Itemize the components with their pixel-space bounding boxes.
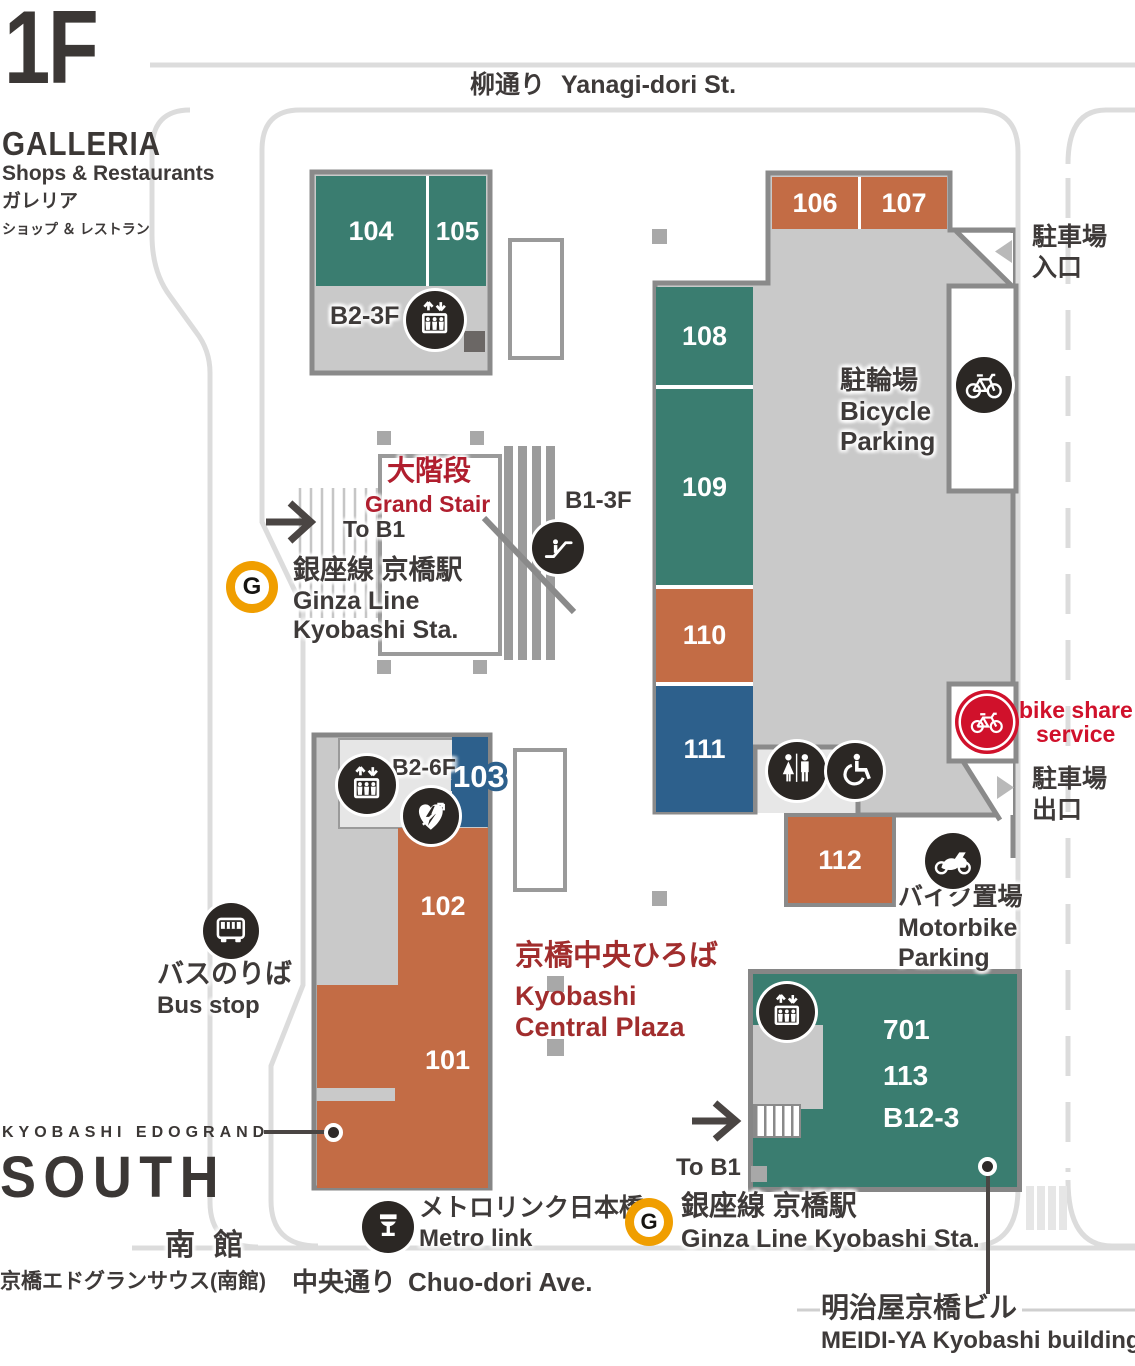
- room-701-label: 701: [883, 1014, 930, 1046]
- structure-box-south: [515, 750, 565, 890]
- motorbike-ja: バイク置場: [898, 884, 1023, 911]
- elevator-icon-south: [338, 756, 396, 814]
- south-leader-line: [264, 1130, 326, 1134]
- ginza-bottom-ja: 銀座線 京橋駅: [681, 1191, 980, 1221]
- room-106: 106: [772, 177, 858, 229]
- floor-label: 1F: [4, 0, 96, 104]
- yanagi-ja: 柳通り: [470, 72, 545, 99]
- galleria-title: GALLERIA: [2, 126, 161, 162]
- ginza-line-en: Ginza Line: [293, 588, 463, 615]
- bus-icon: [203, 903, 259, 959]
- yanagi-dori-street-label: 柳通り Yanagi-dori St.: [470, 72, 736, 99]
- bikeshare-icon: [961, 696, 1013, 748]
- room-101-label: 101: [425, 1045, 470, 1076]
- room-b12-3-label: B12-3: [883, 1102, 959, 1134]
- galleria-subtitle-en: Shops & Restaurants: [2, 163, 214, 186]
- plaza-en1: Kyobashi: [515, 982, 718, 1011]
- room-109: 109: [656, 389, 753, 585]
- ginza-line-g-icon: G: [226, 561, 278, 613]
- ginza-station-bottom-label: 銀座線 京橋駅 Ginza Line Kyobashi Sta.: [681, 1191, 980, 1253]
- motorbike-en2: Parking: [898, 945, 1023, 972]
- chuo-dori-street-label: 中央通り Chuo-dori Ave.: [292, 1268, 592, 1296]
- room-112: 112: [784, 813, 896, 907]
- parking-entrance-ja1: 駐車場: [1032, 224, 1107, 251]
- to-b1-label-stair: To B1: [343, 517, 405, 542]
- ginza-sta-ja: 銀座線 京橋駅: [293, 556, 463, 585]
- bus-ja: バスのりば: [157, 960, 292, 989]
- grand-stair-ja: 大階段: [387, 456, 471, 486]
- metrolink-label: メトロリンク日本橋 Metro link: [419, 1195, 644, 1252]
- bicycle-ja: 駐輪場: [840, 366, 935, 394]
- elevator-icon: [406, 291, 464, 349]
- central-plaza-label: 京橋中央ひろば Kyobashi Central Plaza: [515, 941, 718, 1043]
- motorbike-icon: [925, 833, 981, 889]
- to-b1-stairs: [753, 1104, 801, 1138]
- escalator-icon: [532, 522, 584, 574]
- metrolink-ja: メトロリンク日本橋: [419, 1195, 644, 1222]
- restroom-icon: [768, 742, 826, 800]
- crosswalk: [1026, 1186, 1067, 1230]
- aed-icon: [403, 788, 459, 844]
- g-letter: G: [243, 573, 262, 601]
- meidiya-leader-line: [986, 1174, 990, 1294]
- room-101-gray-notch: [317, 1088, 395, 1101]
- parking-exit-ja2: 出口: [1032, 797, 1107, 824]
- chuo-ja: 中央通り: [292, 1268, 396, 1296]
- motorbike-parking-label: バイク置場 Motorbike Parking: [898, 884, 1023, 972]
- metrolink-en: Metro link: [419, 1226, 644, 1252]
- room-102: 102: [398, 828, 488, 985]
- structure-box-north: [510, 240, 562, 358]
- parking-entrance-label: 駐車場 入口: [1032, 224, 1107, 282]
- south-block-levels: B2-6F: [392, 755, 456, 780]
- parking-entrance-ja2: 入口: [1032, 255, 1107, 282]
- bus-stop-label: バスのりば Bus stop: [157, 960, 292, 1019]
- grand-stair-levels: B1-3F: [565, 488, 632, 514]
- room-104: 104: [316, 176, 426, 286]
- room-108: 108: [656, 287, 753, 385]
- room-103-badge-label: 103: [453, 761, 505, 792]
- galleria-subtitle-ja2: ショップ ＆ レストラン: [2, 222, 150, 237]
- bicycle-en1: Bicycle: [840, 397, 935, 425]
- grand-stair-en: Grand Stair: [365, 492, 490, 517]
- elevator-icon-meidiya: [759, 984, 815, 1040]
- room-101: 101: [317, 985, 488, 1188]
- parking-exit-label: 駐車場 出口: [1032, 766, 1107, 824]
- north-building-service-square: [464, 331, 485, 352]
- south-wing-full-ja: 京橋エドグランサウス(南館): [0, 1271, 266, 1294]
- ginza-station-label: 銀座線 京橋駅 Ginza Line Kyobashi Sta.: [293, 556, 463, 644]
- room-111: 111: [656, 686, 753, 812]
- g-letter: G: [640, 1209, 657, 1235]
- ginza-line-g-icon-bottom: G: [625, 1198, 673, 1246]
- wheelchair-icon: [827, 743, 883, 799]
- bicycle-en2: Parking: [840, 427, 935, 455]
- bicycle-icon: [956, 357, 1012, 413]
- floor-map-1f: 104 105 106 107 108 109 110 111 112 102 …: [0, 0, 1135, 1366]
- meidiya-en: MEIDI-YA Kyobashi building: [821, 1328, 1135, 1354]
- galleria-subtitle-ja: ガレリア: [2, 192, 78, 213]
- room-113-label: 113: [883, 1060, 928, 1092]
- meidiya-ja: 明治屋京橋ビル: [821, 1293, 1135, 1323]
- south-wing-brand: KYOBASHI EDOGRAND: [2, 1124, 269, 1141]
- to-b1-label-south: To B1: [676, 1155, 741, 1181]
- north-block-levels: B2-3F: [330, 303, 399, 330]
- bikeshare-label-1: bike share: [1019, 698, 1133, 723]
- room-105: 105: [429, 176, 486, 286]
- bus-en: Bus stop: [157, 993, 292, 1019]
- plaza-en2: Central Plaza: [515, 1013, 718, 1042]
- meidiya-leader-dot: [978, 1157, 997, 1176]
- parking-exit-ja1: 駐車場: [1032, 766, 1107, 793]
- bikeshare-label-2: service: [1036, 722, 1115, 747]
- south-wing-ja: 南 館: [165, 1230, 248, 1262]
- ginza-sta-en: Kyobashi Sta.: [293, 617, 463, 644]
- plaza-ja: 京橋中央ひろば: [515, 941, 718, 972]
- room-107: 107: [861, 177, 947, 229]
- motorbike-en1: Motorbike: [898, 915, 1023, 942]
- column-square: [751, 1166, 767, 1182]
- room-110: 110: [656, 589, 753, 682]
- yanagi-en: Yanagi-dori St.: [561, 72, 736, 99]
- ginza-bottom-en: Ginza Line Kyobashi Sta.: [681, 1226, 980, 1253]
- metrolink-icon: [362, 1201, 414, 1253]
- south-leader-dot: [324, 1123, 343, 1142]
- south-wing-name: SOUTH: [0, 1147, 226, 1210]
- chuo-en: Chuo-dori Ave.: [408, 1268, 592, 1296]
- meidiya-label: 明治屋京橋ビル MEIDI-YA Kyobashi building: [821, 1293, 1135, 1354]
- bicycle-parking-label: 駐輪場 Bicycle Parking: [840, 366, 935, 455]
